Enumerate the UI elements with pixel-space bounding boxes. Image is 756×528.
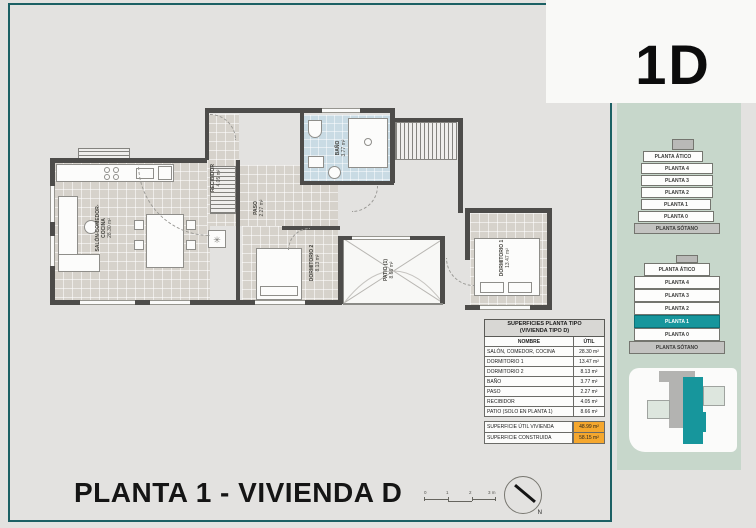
- room-area: 28.30 m²: [108, 200, 114, 256]
- unit-code: 1D: [613, 32, 733, 97]
- table-row: BAÑO 3.77 m²: [484, 377, 605, 387]
- chair: [134, 220, 144, 230]
- chair: [186, 240, 196, 250]
- sofa-chaise: [58, 254, 100, 272]
- stove-burner: [113, 174, 119, 180]
- floor-plan: ✳ SALÓN-COMEDOR-COCINA 28.30 m²: [50, 108, 562, 324]
- room-label-recibidor: RECIBIDOR 4.05 m²: [211, 150, 231, 206]
- key-plan-stairs: [669, 380, 683, 428]
- room-name: SALÓN-COMEDOR-COCINA: [96, 200, 108, 256]
- window: [150, 300, 190, 305]
- wall: [282, 226, 340, 230]
- room-label-dormitorio1: DORMITORIO 1 13.47 m²: [500, 230, 520, 286]
- frame-left-line: [8, 3, 10, 522]
- stove-burner: [104, 174, 110, 180]
- wall: [50, 158, 55, 305]
- key-plan-unit-d-highlight: [683, 377, 703, 444]
- wall: [440, 236, 445, 304]
- table-row: PATIO (SOLO EN PLANTA 1) 8.66 m²: [484, 407, 605, 417]
- stack-upper-floor-4: PLANTA 4: [641, 163, 713, 174]
- window: [322, 108, 360, 113]
- stack-lower-floor-4: PLANTA 4: [634, 276, 720, 289]
- wall: [547, 208, 552, 310]
- frame-top-line: [8, 3, 546, 5]
- wall: [50, 158, 207, 163]
- door-arc: [446, 258, 474, 286]
- ac-unit: ✳: [208, 230, 226, 248]
- wall: [300, 113, 304, 185]
- wall: [236, 160, 240, 302]
- window: [50, 186, 55, 222]
- key-plan-unit-d-wing: [695, 412, 706, 432]
- key-plan-neighbor-unit-right: [703, 386, 725, 406]
- scale-label: 2: [469, 490, 472, 495]
- stack-lower-floor-1-highlighted: PLANTA 1: [634, 315, 720, 328]
- room-label-dormitorio2: DORMITORIO 2 8.13 m²: [310, 235, 330, 291]
- table-row: RECIBIDOR 4.05 m²: [484, 397, 605, 407]
- room-area: 4.05 m²: [217, 150, 223, 206]
- stack-lower-floor-3: PLANTA 3: [634, 289, 720, 302]
- col-header-util: ÚTIL: [574, 337, 604, 346]
- scale-label: 1: [446, 490, 449, 495]
- plan-sheet: 1D PLANTA ÁTICO PLANTA 4 PLANTA 3 PLANTA…: [0, 0, 756, 528]
- key-plan: [629, 368, 737, 452]
- surfaces-table-title: SUPERFICIES PLANTA TIPO (VIVIENDA TIPO D…: [484, 319, 605, 337]
- table-total-row-util: SUPERFICIE ÚTIL VIVIENDA 48.99 m²: [484, 421, 605, 433]
- room-label-bano: BAÑO 3.77 m²: [336, 120, 356, 176]
- chair: [134, 240, 144, 250]
- room-area: 3.77 m²: [342, 120, 348, 176]
- stack-upper-floor-atico: PLANTA ÁTICO: [643, 151, 703, 162]
- table-row: SALÓN, COMEDOR, COCINA 28.30 m²: [484, 347, 605, 357]
- stove-burner: [113, 167, 119, 173]
- terrace-hatch-topright: [395, 122, 457, 160]
- scale-label: 0: [424, 490, 427, 495]
- room-area: 13.47 m²: [506, 230, 512, 286]
- stack-lower-floor-atico: PLANTA ÁTICO: [644, 263, 710, 276]
- stack-lower-roof: [676, 255, 698, 263]
- stack-upper-floor-2: PLANTA 2: [641, 187, 713, 198]
- window: [50, 236, 55, 266]
- table-row: PASO 2.27 m²: [484, 387, 605, 397]
- page-title: PLANTA 1 - VIVIENDA D: [74, 477, 402, 509]
- wall: [458, 118, 463, 213]
- window: [480, 305, 530, 310]
- north-arrow-icon: N: [504, 476, 542, 514]
- door-arc: [352, 186, 378, 212]
- wall: [395, 118, 461, 122]
- wall: [465, 208, 552, 213]
- stack-upper-floor-0: PLANTA 0: [638, 211, 714, 222]
- key-plan-neighbor-unit-left: [647, 400, 670, 419]
- surfaces-table-title-line2: (VIVIENDA TIPO D): [485, 328, 604, 335]
- room-area: 8.66 m²: [390, 242, 396, 298]
- sofa: [58, 196, 78, 258]
- toilet: [308, 120, 322, 138]
- patio-bottom-edge: [343, 303, 443, 305]
- north-needle: [514, 484, 536, 503]
- surfaces-table-title-line1: SUPERFICIES PLANTA TIPO: [485, 321, 604, 328]
- room-label-salon: SALÓN-COMEDOR-COCINA 28.30 m²: [96, 200, 116, 256]
- shower-drain: [364, 138, 372, 146]
- room-label-paso: PASO 2.27 m²: [254, 180, 274, 236]
- room-area: 8.13 m²: [316, 235, 322, 291]
- window: [255, 300, 305, 305]
- stack-upper-floor-3: PLANTA 3: [641, 175, 713, 186]
- stove-burner: [104, 167, 110, 173]
- stack-upper-roof: [672, 139, 694, 150]
- stack-lower-floor-sotano: PLANTA SÓTANO: [629, 341, 725, 354]
- bathroom-sink: [308, 156, 324, 168]
- stack-lower-floor-0: PLANTA 0: [634, 328, 720, 341]
- wall: [338, 236, 343, 304]
- wall: [300, 181, 394, 185]
- room-label-patio: PATIO (1) 8.66 m²: [384, 242, 404, 298]
- table-row: DORMITORIO 1 13.47 m²: [484, 357, 605, 367]
- surfaces-table: SUPERFICIES PLANTA TIPO (VIVIENDA TIPO D…: [484, 319, 605, 444]
- scale-label: 3 m: [488, 490, 496, 495]
- north-label: N: [538, 510, 542, 516]
- scale-bar: 0 1 2 3 m: [424, 490, 498, 506]
- stack-upper-floor-sotano: PLANTA SÓTANO: [634, 223, 720, 234]
- pillow: [260, 286, 298, 296]
- window: [352, 236, 410, 240]
- table-row: DORMITORIO 2 8.13 m²: [484, 367, 605, 377]
- frame-right-line: [610, 78, 612, 522]
- wall: [465, 208, 470, 260]
- stack-lower-floor-2: PLANTA 2: [634, 302, 720, 315]
- wall: [390, 113, 395, 183]
- room-area: 2.27 m²: [260, 180, 266, 236]
- col-header-nombre: NOMBRE: [485, 337, 574, 346]
- window: [80, 300, 135, 305]
- table-total-row-construida: SUPERFICIE CONSTRUIDA 58.15 m²: [484, 432, 605, 444]
- wall: [205, 108, 209, 160]
- stack-upper-floor-1: PLANTA 1: [641, 199, 711, 210]
- surfaces-table-header-row: NOMBRE ÚTIL: [484, 337, 605, 347]
- frame-bottom-line: [8, 520, 612, 522]
